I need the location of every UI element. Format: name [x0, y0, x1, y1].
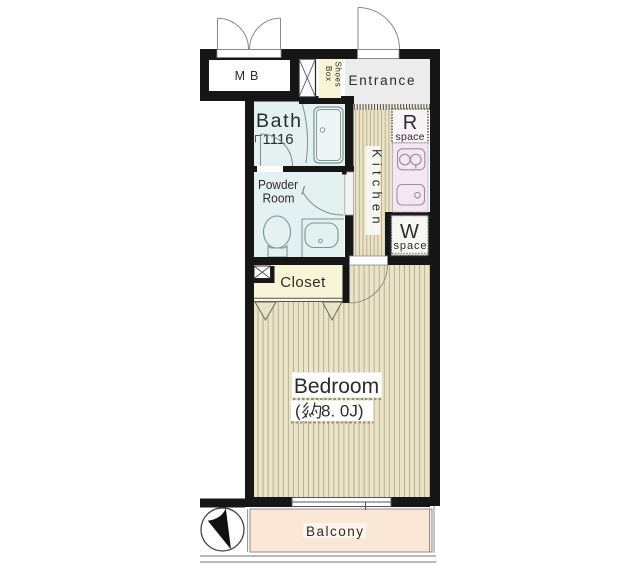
svg-text:Entrance: Entrance — [349, 73, 415, 88]
svg-text:Shoes: Shoes — [334, 62, 343, 88]
svg-text:Balcony: Balcony — [306, 524, 363, 539]
svg-text:Room: Room — [263, 191, 295, 206]
svg-text:Bath: Bath — [256, 110, 301, 132]
svg-text:Kitchen: Kitchen — [370, 149, 385, 229]
svg-text:space: space — [396, 131, 425, 143]
svg-text:Bedroom: Bedroom — [294, 375, 379, 398]
svg-text:(: ( — [295, 402, 301, 421]
svg-text:MB: MB — [235, 69, 264, 83]
svg-text:space: space — [394, 240, 427, 252]
svg-text:Closet: Closet — [280, 274, 326, 291]
svg-text:Box: Box — [324, 66, 333, 82]
svg-text:8. 0J): 8. 0J) — [321, 402, 364, 421]
